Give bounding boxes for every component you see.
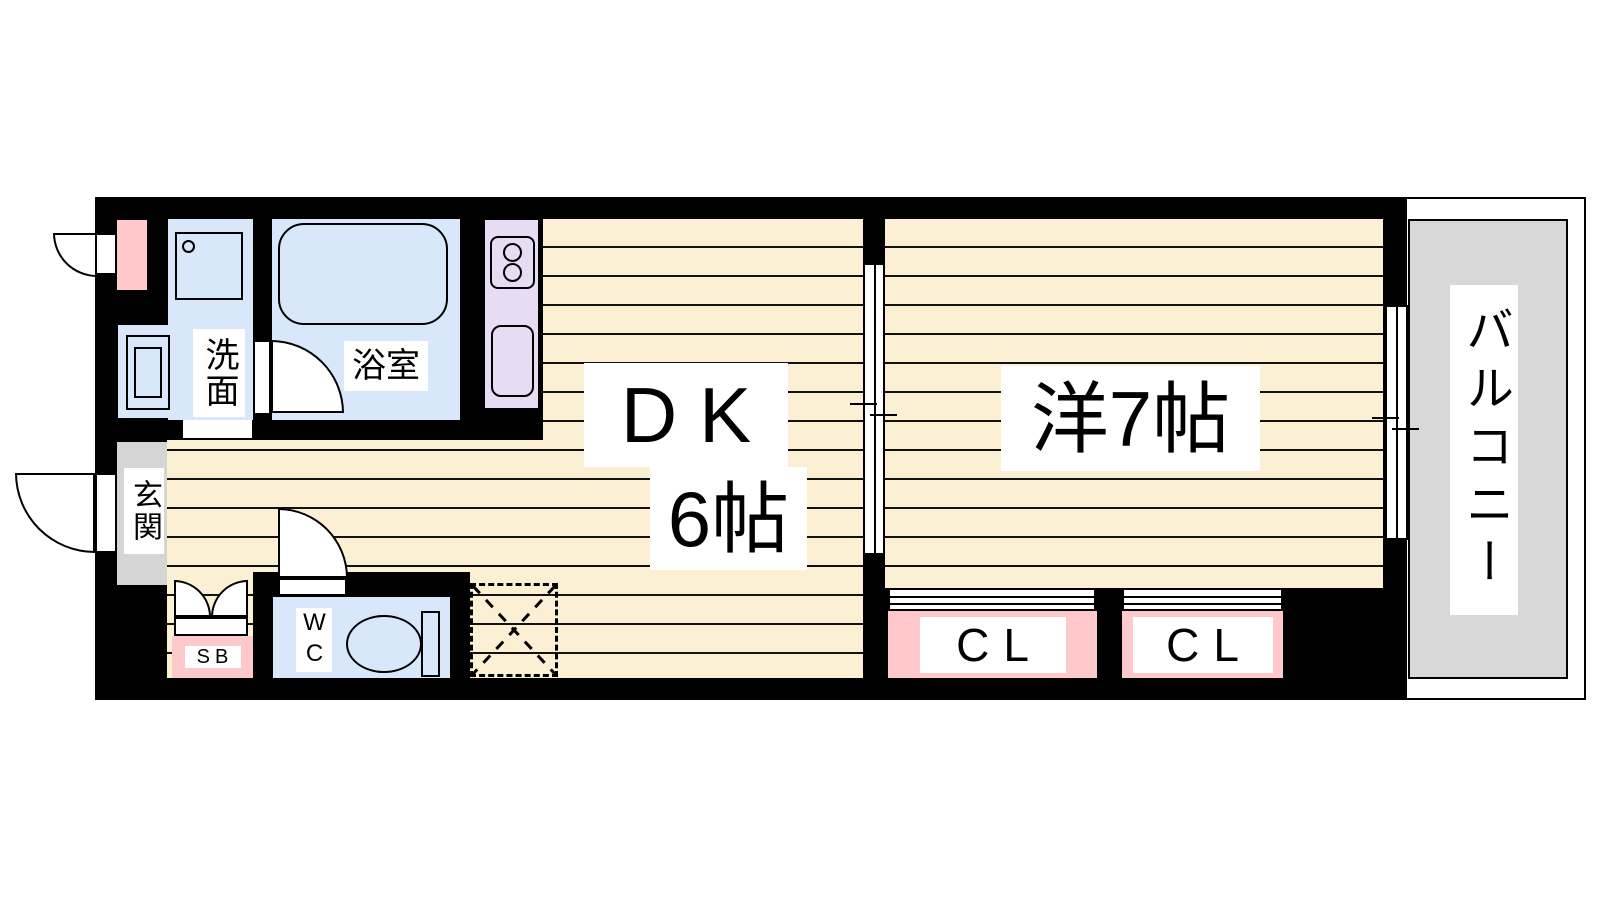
western-room-label: 洋7帖: [1001, 366, 1260, 471]
window-handle-icon: [1392, 428, 1419, 430]
inspection-hatch-icon: [470, 583, 558, 677]
burner-icon: [503, 243, 522, 262]
service-door-leaf-icon: [95, 233, 117, 275]
toilet-tank-icon: [421, 611, 440, 677]
dk-size-label: 6帖: [650, 467, 807, 570]
floor-plan: SB CL CL 洗面 浴室 玄関 WC DK 6帖 洋7帖 バルコニー: [0, 0, 1600, 900]
dk-label: DK: [584, 363, 788, 467]
bathroom-label: 浴室: [344, 341, 428, 391]
shoe-box-counter-icon: [174, 617, 248, 636]
closet-label: CL: [1133, 617, 1273, 673]
shoe-box-label: SB: [185, 646, 241, 668]
window-handle-icon: [1372, 417, 1399, 419]
closet-left: CL: [888, 611, 1097, 678]
washer-pan-icon: [175, 232, 243, 300]
toilet-bowl-icon: [346, 615, 422, 673]
vanity-basin-icon: [134, 347, 162, 398]
washer-drain-icon: [182, 240, 195, 253]
bathroom-door-leaf-icon: [253, 340, 271, 415]
shoe-box: SB: [172, 636, 253, 678]
kitchen-sink-icon: [491, 325, 534, 397]
vanity-cabinet-icon: [126, 335, 170, 410]
balcony-label: バルコニー: [1450, 285, 1518, 615]
stove-icon: [490, 236, 535, 289]
closet-sliding-door-icon: [888, 588, 1096, 611]
closet-sliding-door-icon: [1122, 588, 1283, 611]
kitchen-counter: [483, 218, 540, 410]
entrance-door-leaf-icon: [95, 473, 117, 553]
wc-label: WC: [296, 608, 332, 672]
closet-label: CL: [920, 617, 1066, 673]
balcony-window-icon: [1385, 305, 1408, 540]
sliding-door-handle-icon: [870, 414, 897, 416]
wc-door-leaf-icon: [278, 578, 347, 596]
entrance-door-swing-icon: [15, 473, 95, 553]
service-door-swing-icon: [53, 233, 97, 277]
washroom-opening: [183, 420, 252, 438]
entrance-label: 玄関: [124, 468, 164, 554]
pipe-space: [117, 220, 147, 290]
closet-right: CL: [1122, 611, 1283, 678]
washroom-label: 洗面: [193, 329, 245, 417]
sliding-door-icon: [863, 263, 885, 555]
bathtub-icon: [278, 223, 448, 325]
burner-icon: [503, 263, 522, 282]
sliding-door-handle-icon: [850, 403, 877, 405]
